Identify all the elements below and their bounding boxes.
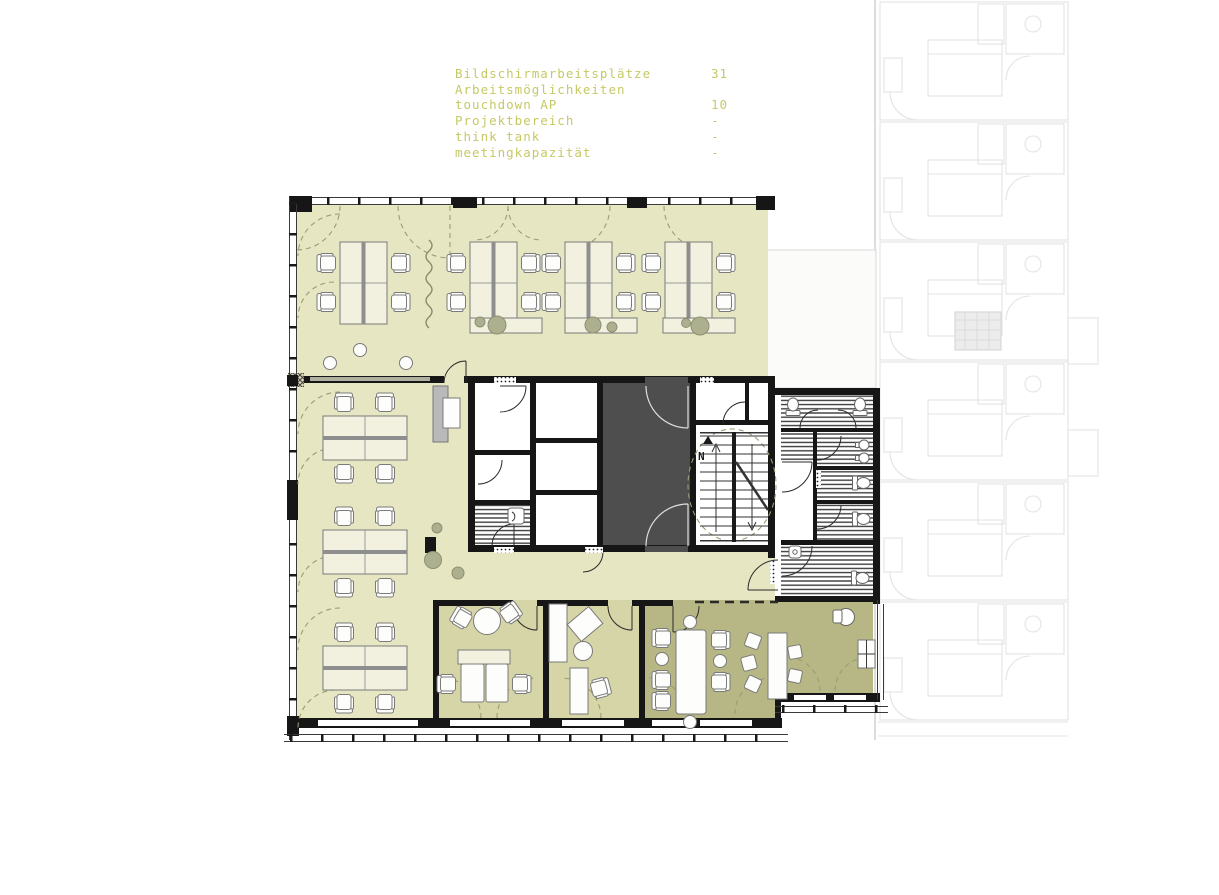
legend-row: Arbeitsmöglichkeiten: [455, 82, 735, 98]
touchdown-counter: [768, 633, 787, 699]
stool: [324, 357, 337, 370]
sofa-back: [458, 650, 510, 664]
legend-row: think tank -: [455, 129, 735, 145]
legend-value: [711, 82, 735, 98]
sofa: [486, 664, 508, 702]
legend-label: touchdown AP: [455, 97, 557, 113]
legend-value: 31: [711, 66, 735, 82]
legend-value: -: [711, 113, 735, 129]
legend-label: Bildschirmarbeitsplätze: [455, 66, 651, 82]
legend: Bildschirmarbeitsplätze 31 Arbeitsmöglic…: [455, 66, 735, 160]
legend-label: Arbeitsmöglichkeiten: [455, 82, 626, 98]
legend-row: meetingkapazität -: [455, 145, 735, 161]
floor-plan-page: { "legend": { "rows": [ {"label":"Bildsc…: [0, 0, 1219, 895]
cabinet: [549, 604, 567, 662]
stool: [354, 344, 367, 357]
legend-label: Projektbereich: [455, 113, 574, 129]
legend-row: Projektbereich -: [455, 113, 735, 129]
corridor-area: [468, 552, 775, 602]
stool: [400, 357, 413, 370]
chair: [574, 642, 593, 661]
wc-block: [768, 388, 880, 604]
north-label: N: [698, 450, 705, 463]
meeting-table: [676, 630, 706, 714]
legend-label: think tank: [455, 129, 540, 145]
elevator-shaft: [603, 383, 690, 549]
plant: [488, 316, 506, 334]
legend-row: touchdown AP 10: [455, 97, 735, 113]
sofa: [461, 664, 484, 702]
round-table: [474, 608, 501, 635]
side-table: [570, 668, 588, 714]
legend-value: 10: [711, 97, 735, 113]
legend-row: Bildschirmarbeitsplätze 31: [455, 66, 735, 82]
legend-value: -: [711, 145, 735, 161]
legend-value: -: [711, 129, 735, 145]
legend-label: meetingkapazität: [455, 145, 591, 161]
cabinet: [443, 398, 460, 428]
